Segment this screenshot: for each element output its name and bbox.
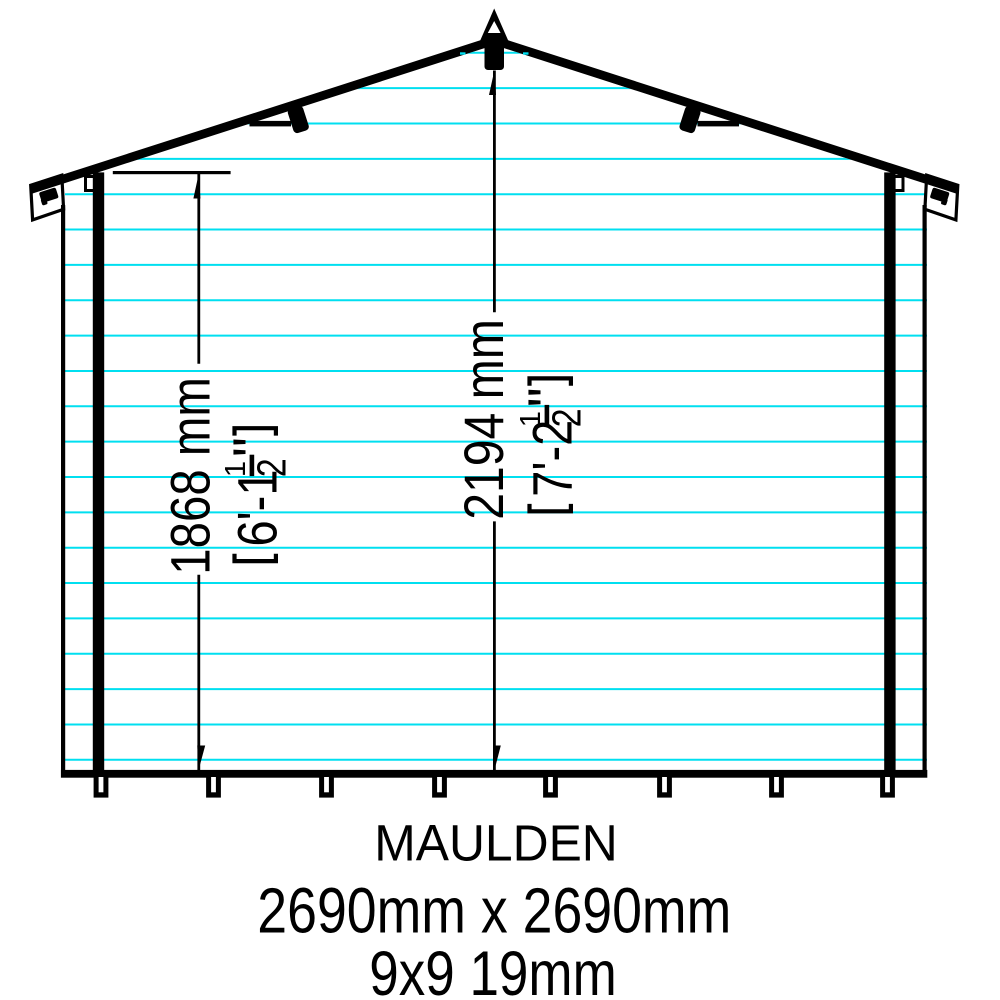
svg-text:6'-1: 6'-1 [226, 470, 289, 547]
svg-text:2: 2 [544, 408, 590, 427]
svg-text:MAULDEN: MAULDEN [374, 815, 618, 872]
svg-text:2: 2 [249, 458, 295, 477]
svg-text:1: 1 [515, 411, 547, 427]
svg-text:": " [516, 387, 579, 407]
svg-text:1868 mm: 1868 mm [159, 377, 222, 575]
svg-text:9x9 19mm: 9x9 19mm [369, 939, 617, 1000]
svg-text:": " [221, 437, 284, 457]
svg-text:2690mm x 2690mm: 2690mm x 2690mm [257, 875, 731, 947]
svg-text:1: 1 [220, 461, 252, 477]
svg-text:2194 mm: 2194 mm [452, 319, 515, 520]
svg-text:7'-2: 7'-2 [521, 420, 584, 497]
